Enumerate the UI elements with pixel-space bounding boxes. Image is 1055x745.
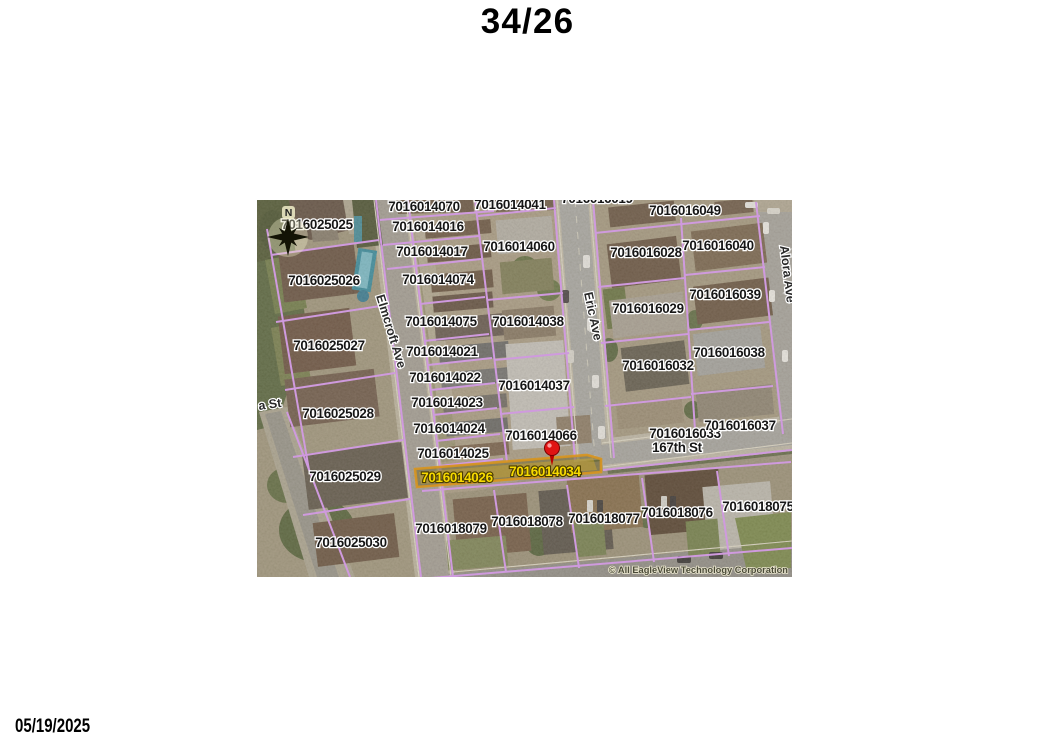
- svg-text:7016014025: 7016014025: [417, 446, 489, 461]
- svg-text:7016025030: 7016025030: [315, 535, 386, 550]
- svg-text:7016018075: 7016018075: [722, 499, 792, 514]
- svg-text:7016014070: 7016014070: [388, 200, 459, 214]
- svg-text:7016014041: 7016014041: [474, 200, 546, 212]
- svg-text:7016014024: 7016014024: [413, 421, 485, 436]
- svg-text:7016016037: 7016016037: [704, 418, 775, 433]
- svg-text:N: N: [285, 207, 293, 219]
- svg-text:7016025029: 7016025029: [309, 469, 380, 484]
- svg-text:7016014075: 7016014075: [405, 314, 477, 329]
- svg-text:7016014034: 7016014034: [509, 464, 581, 479]
- svg-text:167th St: 167th St: [652, 440, 703, 455]
- svg-text:7016014074: 7016014074: [402, 272, 474, 287]
- svg-text:7016018076: 7016018076: [641, 505, 712, 520]
- svg-text:7016016032: 7016016032: [622, 358, 693, 373]
- svg-text:7016014016: 7016014016: [392, 219, 463, 234]
- svg-text:7016018078: 7016018078: [491, 514, 563, 529]
- svg-text:7016014026: 7016014026: [421, 470, 492, 485]
- svg-text:7016016028: 7016016028: [610, 245, 682, 260]
- svg-text:7016016029: 7016016029: [612, 301, 683, 316]
- svg-text:7016016038: 7016016038: [693, 345, 765, 360]
- svg-text:7016014017: 7016014017: [396, 244, 467, 259]
- svg-text:7016014060: 7016014060: [483, 239, 554, 254]
- svg-text:7016014038: 7016014038: [492, 314, 564, 329]
- svg-text:7016025028: 7016025028: [302, 406, 374, 421]
- svg-text:7016014022: 7016014022: [409, 370, 480, 385]
- svg-text:7016014023: 7016014023: [411, 395, 482, 410]
- svg-text:7016016040: 7016016040: [682, 238, 753, 253]
- svg-text:7016014066: 7016014066: [505, 428, 576, 443]
- svg-text:7016018077: 7016018077: [568, 511, 639, 526]
- svg-text:7016016039: 7016016039: [689, 287, 760, 302]
- svg-text:© All EagleView Technology Cor: © All EagleView Technology Corporation: [609, 565, 789, 575]
- svg-text:7016025027: 7016025027: [293, 338, 364, 353]
- svg-text:7016018079: 7016018079: [415, 521, 486, 536]
- svg-text:7016014037: 7016014037: [498, 378, 569, 393]
- svg-text:7016016049: 7016016049: [649, 203, 720, 218]
- svg-text:7016016019: 7016016019: [561, 200, 632, 206]
- svg-text:7016025026: 7016025026: [288, 273, 359, 288]
- svg-text:7016014021: 7016014021: [406, 344, 478, 359]
